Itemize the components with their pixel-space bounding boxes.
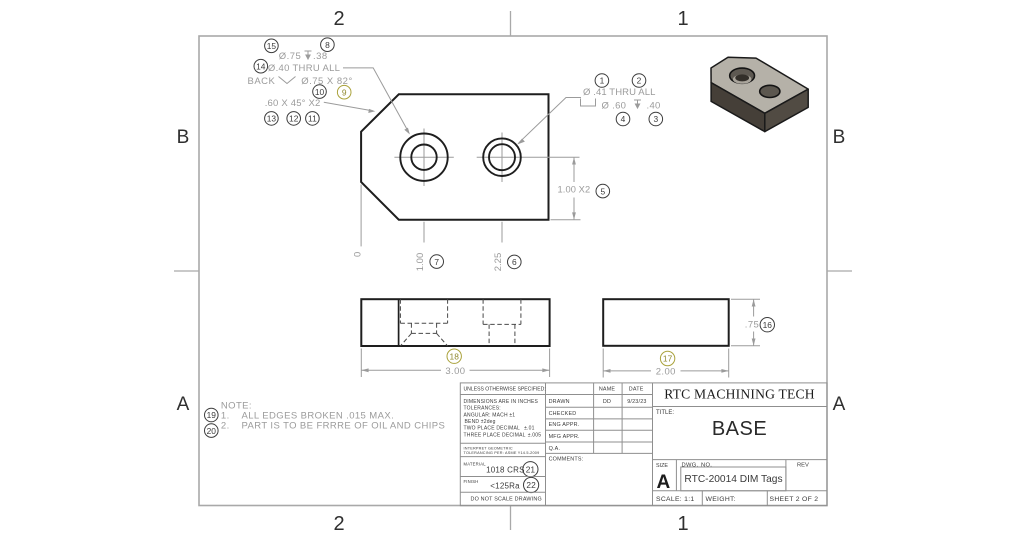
svg-text:0: 0 [353, 252, 364, 257]
svg-text:FINISH: FINISH [464, 479, 479, 484]
svg-text:BASE: BASE [712, 418, 767, 440]
svg-text:SCALE: 1:1: SCALE: 1:1 [656, 496, 695, 503]
svg-text:1: 1 [677, 8, 688, 30]
svg-text:DATE: DATE [629, 386, 644, 392]
svg-text:1.00 X2: 1.00 X2 [558, 185, 591, 195]
svg-text:DRAWN: DRAWN [549, 399, 570, 405]
svg-text:2: 2 [333, 513, 344, 535]
svg-text:16: 16 [763, 320, 773, 330]
svg-text:10: 10 [315, 87, 325, 97]
svg-text:2: 2 [333, 8, 344, 30]
svg-text:TWO PLACE DECIMAL ±.01: TWO PLACE DECIMAL ±.01 [464, 426, 535, 432]
svg-text:INTERPRET GEOMETRIC: INTERPRET GEOMETRIC [464, 447, 513, 451]
svg-text:TOLERANCES:: TOLERANCES: [464, 406, 501, 412]
svg-text:14: 14 [256, 61, 266, 71]
svg-text:THREE PLACE DECIMAL ±.005: THREE PLACE DECIMAL ±.005 [464, 433, 542, 439]
svg-text:5: 5 [600, 186, 605, 196]
svg-text:1: 1 [677, 513, 688, 535]
svg-text:9/23/23: 9/23/23 [627, 399, 646, 405]
svg-text:BACK: BACK [248, 76, 276, 87]
svg-text:BEND ±2deg: BEND ±2deg [465, 419, 496, 425]
svg-text:DIMENSIONS ARE IN INCHES: DIMENSIONS ARE IN INCHES [464, 399, 539, 405]
svg-text:MFG APPR.: MFG APPR. [549, 434, 580, 440]
svg-text:1: 1 [600, 76, 605, 86]
svg-text:21: 21 [526, 464, 536, 474]
svg-text:TOLERANCING PER: ASME Y14.5-20: TOLERANCING PER: ASME Y14.5-2009 [464, 451, 540, 455]
svg-text:DO NOT SCALE DRAWING: DO NOT SCALE DRAWING [471, 496, 542, 502]
svg-text:SHEET 2 OF 2: SHEET 2 OF 2 [770, 496, 819, 503]
svg-text:Q.A.: Q.A. [549, 446, 561, 452]
svg-text:DD: DD [603, 399, 611, 405]
svg-text:RTC MACHINING TECH: RTC MACHINING TECH [664, 386, 815, 401]
svg-text:12: 12 [289, 114, 299, 124]
svg-text:UNLESS OTHERWISE SPECIFIED:: UNLESS OTHERWISE SPECIFIED: [464, 387, 546, 393]
svg-text:COMMENTS:: COMMENTS: [549, 456, 584, 462]
svg-text:A: A [833, 394, 846, 415]
svg-text:8: 8 [325, 40, 330, 50]
svg-text:15: 15 [267, 41, 277, 51]
svg-text:B: B [177, 127, 190, 148]
svg-text:NAME: NAME [599, 386, 616, 392]
svg-text:TITLE:: TITLE: [656, 410, 674, 416]
svg-text:WEIGHT:: WEIGHT: [706, 496, 736, 503]
svg-text:4: 4 [621, 114, 626, 124]
svg-text:.75: .75 [745, 320, 759, 331]
svg-text:2: 2 [637, 76, 642, 86]
svg-text:9: 9 [342, 87, 347, 97]
svg-text:1.00: 1.00 [415, 253, 426, 272]
svg-text:ANGULAR: MACH ±1: ANGULAR: MACH ±1 [464, 412, 516, 418]
svg-text:A: A [657, 472, 671, 493]
svg-text:3.00: 3.00 [445, 366, 465, 377]
svg-text:2.00: 2.00 [656, 366, 676, 377]
svg-text:3: 3 [653, 114, 658, 124]
svg-text:A: A [177, 394, 190, 415]
svg-text:1018 CRS: 1018 CRS [486, 466, 525, 475]
svg-text:<125Ra: <125Ra [490, 481, 520, 490]
svg-text:19: 19 [207, 410, 217, 420]
svg-text:B: B [833, 127, 846, 148]
svg-text:18: 18 [450, 351, 460, 361]
svg-text:22: 22 [526, 480, 536, 490]
svg-text:20: 20 [207, 426, 217, 436]
svg-text:RTC-20014 DIM Tags: RTC-20014 DIM Tags [684, 474, 782, 485]
svg-text:REV: REV [797, 463, 809, 469]
svg-text:Ø.40 THRU ALL: Ø.40 THRU ALL [268, 63, 340, 74]
svg-text:.38: .38 [313, 51, 328, 62]
svg-text:CHECKED: CHECKED [549, 411, 577, 417]
svg-text:2.25: 2.25 [493, 253, 504, 272]
svg-text:.40: .40 [647, 100, 661, 111]
svg-text:Ø.75: Ø.75 [279, 51, 302, 62]
svg-text:13: 13 [267, 114, 277, 124]
svg-text:DWG. NO.: DWG. NO. [682, 463, 713, 469]
svg-text:Ø .41 THRU ALL: Ø .41 THRU ALL [583, 87, 656, 98]
svg-text:Ø .60: Ø .60 [602, 100, 627, 111]
svg-text:6: 6 [512, 257, 517, 267]
svg-text:11: 11 [308, 114, 317, 124]
svg-text:17: 17 [663, 354, 673, 364]
svg-text:2. PART IS TO BE FRRRE OF: 2. PART IS TO BE FRRRE OF OIL AND CHIPS [221, 420, 445, 431]
svg-text:MATERIAL: MATERIAL [464, 462, 487, 467]
svg-text:.60 X 45° X2: .60 X 45° X2 [265, 98, 321, 109]
svg-text:SIZE: SIZE [656, 463, 668, 469]
svg-text:7: 7 [434, 257, 439, 267]
svg-text:ENG APPR.: ENG APPR. [549, 422, 580, 428]
